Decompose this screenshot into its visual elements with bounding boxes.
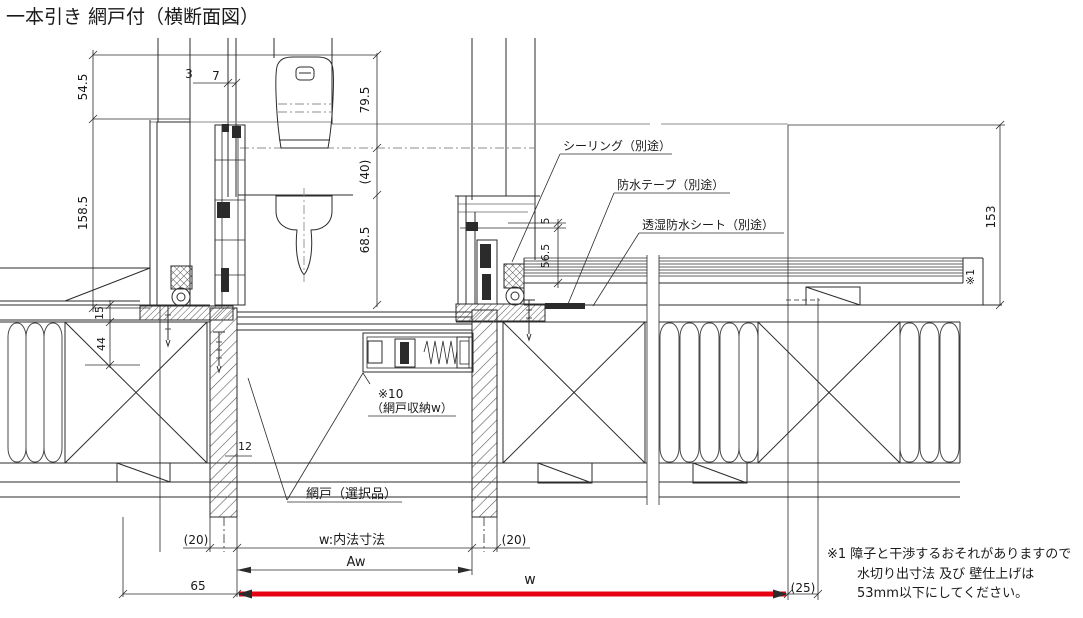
dim-20-right: (20) [502,533,527,547]
dim-aw: Aw [347,555,366,570]
waterproof-tape-mark [545,303,585,309]
callout-screen-storage: （網戸収納w） [371,401,453,415]
cross-section-drawing: 一本引き 網戸付（横断面図） 54.5 158.5 3 7 79.5 (40) … [0,0,1083,618]
sealing-backer-left [171,266,192,289]
dim-56-5: 56.5 [539,244,552,269]
dim-20-left: (20) [184,533,209,547]
callout-tape: 防水テープ（別途） [617,177,724,192]
dim-79-5: 79.5 [358,87,372,114]
callout-sheet: 透湿防水シート（別途） [642,217,774,232]
dim-w-inner: w:内法寸法 [319,532,385,548]
dim-25: (25) [791,581,816,595]
callout-screen-storage-ref: ※10 [378,387,403,401]
drawing-page: 一本引き 網戸付（横断面図） 54.5 158.5 3 7 79.5 (40) … [0,0,1083,618]
dim-153: 153 [984,206,998,229]
dim-54-5: 54.5 [76,74,90,101]
dim-68-5: 68.5 [358,227,372,254]
ref-mark-1: ※1 [964,269,977,285]
dim-44: 44 [95,337,108,351]
dim-158-5: 158.5 [76,196,90,230]
note-line-2: 水切り出寸法 及び 壁仕上げは [857,567,1034,582]
page-title: 一本引き 網戸付（横断面図） [6,6,259,28]
dim-3: 3 [185,67,193,81]
dim-40: (40) [358,160,372,185]
note-line-1: ※1 障子と干渉するおそれがありますので [827,547,1071,562]
dim-7: 7 [212,69,220,83]
dim-65: 65 [190,579,205,593]
callout-sealing: シーリング（別途） [563,138,671,153]
dim-15: 15 [93,306,106,320]
callout-screen-door: 網戸（選択品） [306,487,397,502]
dim-12: 12 [238,440,252,453]
dim-w: w [524,572,535,588]
sealing-backer-right [504,264,524,288]
note-line-3: 53mm以下にしてください。 [857,586,1028,601]
dim-5: 5 [539,218,552,225]
